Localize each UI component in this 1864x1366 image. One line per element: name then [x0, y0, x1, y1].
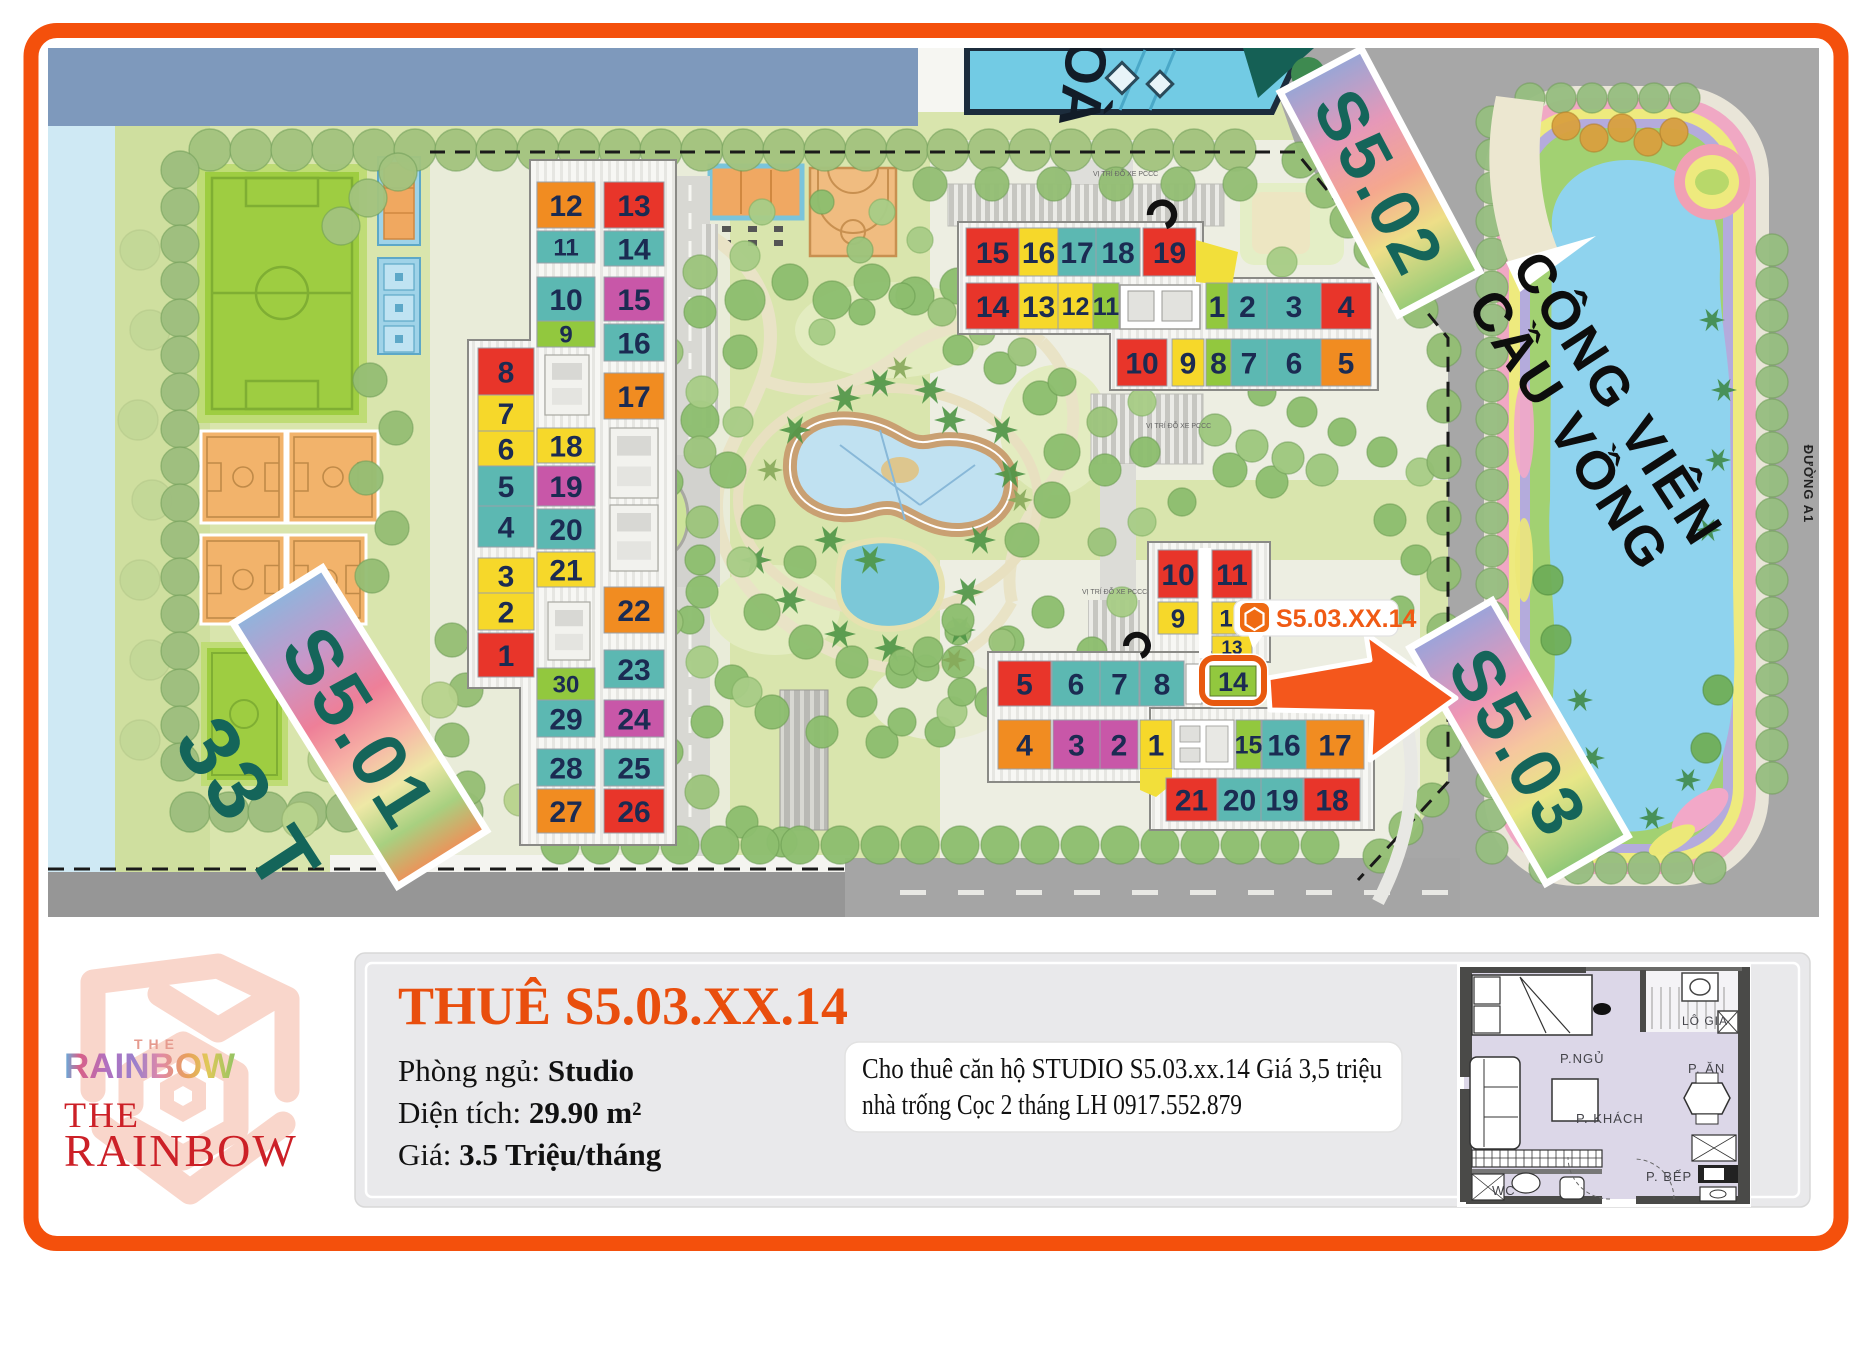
svg-text:10: 10 — [549, 284, 582, 317]
svg-text:16: 16 — [1267, 729, 1300, 762]
svg-text:10: 10 — [1125, 347, 1158, 380]
svg-text:12: 12 — [549, 190, 582, 223]
svg-text:18: 18 — [549, 430, 582, 463]
svg-text:27: 27 — [549, 796, 582, 829]
svg-text:3: 3 — [1068, 729, 1085, 762]
svg-text:2: 2 — [498, 596, 515, 629]
svg-text:2: 2 — [1239, 291, 1256, 324]
svg-text:Giá: 3.5 Triệu/tháng: Giá: 3.5 Triệu/tháng — [398, 1137, 662, 1172]
svg-text:9: 9 — [1180, 347, 1197, 380]
svg-text:15: 15 — [1235, 732, 1263, 760]
svg-text:nhà trống Cọc 2 tháng LH 0917.: nhà trống Cọc 2 tháng LH 0917.552.879 — [862, 1089, 1242, 1121]
svg-text:1: 1 — [498, 640, 515, 673]
svg-text:26: 26 — [617, 796, 650, 829]
svg-text:S5.03.XX.14: S5.03.XX.14 — [1276, 605, 1416, 633]
svg-text:18: 18 — [1101, 237, 1134, 270]
svg-text:15: 15 — [976, 237, 1009, 270]
svg-text:ĐƯỜNG A1: ĐƯỜNG A1 — [1801, 445, 1816, 524]
svg-text:21: 21 — [1175, 784, 1208, 817]
svg-text:VỊ TRÍ ĐỖ XE PCCC: VỊ TRÍ ĐỖ XE PCCC — [1082, 587, 1147, 596]
svg-text:24: 24 — [617, 703, 651, 736]
svg-text:9: 9 — [1171, 603, 1185, 633]
svg-text:30: 30 — [553, 672, 580, 699]
svg-text:VỊ TRÍ ĐỖ XE PCCC: VỊ TRÍ ĐỖ XE PCCC — [1093, 169, 1158, 178]
svg-text:5: 5 — [1338, 347, 1355, 380]
svg-text:RAINBOW: RAINBOW — [64, 1125, 298, 1176]
svg-text:14: 14 — [617, 233, 651, 266]
svg-text:15: 15 — [617, 284, 650, 317]
svg-text:17: 17 — [617, 381, 650, 414]
svg-text:8: 8 — [1210, 347, 1227, 380]
svg-text:6: 6 — [1286, 347, 1303, 380]
svg-text:12: 12 — [1062, 293, 1090, 321]
svg-text:3: 3 — [498, 560, 515, 593]
svg-text:6: 6 — [498, 433, 515, 466]
svg-text:16: 16 — [617, 327, 650, 360]
svg-text:1: 1 — [1219, 606, 1232, 633]
svg-text:2: 2 — [1111, 729, 1128, 762]
svg-text:19: 19 — [1265, 784, 1298, 817]
svg-text:5: 5 — [498, 471, 515, 504]
svg-text:22: 22 — [617, 595, 650, 628]
svg-text:4: 4 — [1016, 729, 1033, 762]
svg-text:LÔ GIA: LÔ GIA — [1682, 1013, 1728, 1028]
svg-text:Diện tích: 29.90 m²: Diện tích: 29.90 m² — [398, 1095, 641, 1130]
svg-text:17: 17 — [1060, 237, 1093, 270]
svg-text:29: 29 — [549, 703, 582, 736]
svg-text:P. KHÁCH: P. KHÁCH — [1576, 1111, 1644, 1126]
svg-text:11: 11 — [553, 235, 578, 262]
svg-text:6: 6 — [1068, 668, 1085, 701]
svg-text:9: 9 — [559, 322, 572, 349]
svg-text:21: 21 — [549, 554, 582, 587]
svg-text:8: 8 — [1154, 668, 1171, 701]
svg-text:11: 11 — [1216, 559, 1248, 592]
svg-text:11: 11 — [1093, 293, 1120, 321]
svg-text:P. BẾP: P. BẾP — [1646, 1169, 1692, 1184]
svg-text:17: 17 — [1318, 729, 1351, 762]
svg-text:4: 4 — [1338, 291, 1355, 324]
svg-text:23: 23 — [617, 654, 650, 687]
svg-text:OÀ: OÀ — [1046, 37, 1120, 130]
svg-text:10: 10 — [1161, 559, 1194, 592]
svg-text:20: 20 — [1223, 784, 1256, 817]
svg-text:7: 7 — [498, 398, 515, 431]
svg-text:VỊ TRÍ ĐỖ XE PCCC: VỊ TRÍ ĐỖ XE PCCC — [1146, 421, 1211, 430]
svg-text:25: 25 — [617, 752, 650, 785]
svg-text:Phòng ngủ: Studio: Phòng ngủ: Studio — [398, 1053, 634, 1088]
svg-text:18: 18 — [1315, 784, 1348, 817]
svg-text:P.NGỦ: P.NGỦ — [1560, 1051, 1605, 1066]
svg-text:3: 3 — [1286, 291, 1303, 324]
svg-text:Cho thuê căn hộ STUDIO S5.03.x: Cho thuê căn hộ STUDIO S5.03.xx.14 Giá 3… — [862, 1053, 1382, 1085]
svg-text:16: 16 — [1022, 237, 1055, 270]
svg-text:20: 20 — [549, 514, 582, 547]
svg-text:RAINBOW: RAINBOW — [64, 1047, 235, 1086]
svg-text:5: 5 — [1016, 668, 1033, 701]
svg-text:P. ĂN: P. ĂN — [1688, 1061, 1725, 1076]
svg-text:14: 14 — [976, 291, 1010, 324]
svg-text:19: 19 — [549, 471, 582, 504]
svg-text:4: 4 — [498, 511, 515, 544]
svg-text:28: 28 — [549, 752, 582, 785]
svg-text:THUÊ S5.03.XX.14: THUÊ S5.03.XX.14 — [398, 976, 848, 1036]
svg-text:7: 7 — [1241, 347, 1258, 380]
svg-text:1: 1 — [1148, 729, 1165, 762]
svg-text:7: 7 — [1111, 668, 1128, 701]
svg-text:WC: WC — [1492, 1183, 1516, 1198]
svg-text:13: 13 — [617, 190, 650, 223]
svg-text:13: 13 — [1022, 291, 1055, 324]
svg-text:14: 14 — [1218, 667, 1248, 697]
svg-text:19: 19 — [1153, 237, 1186, 270]
svg-text:8: 8 — [498, 356, 515, 389]
svg-text:1: 1 — [1209, 291, 1226, 324]
